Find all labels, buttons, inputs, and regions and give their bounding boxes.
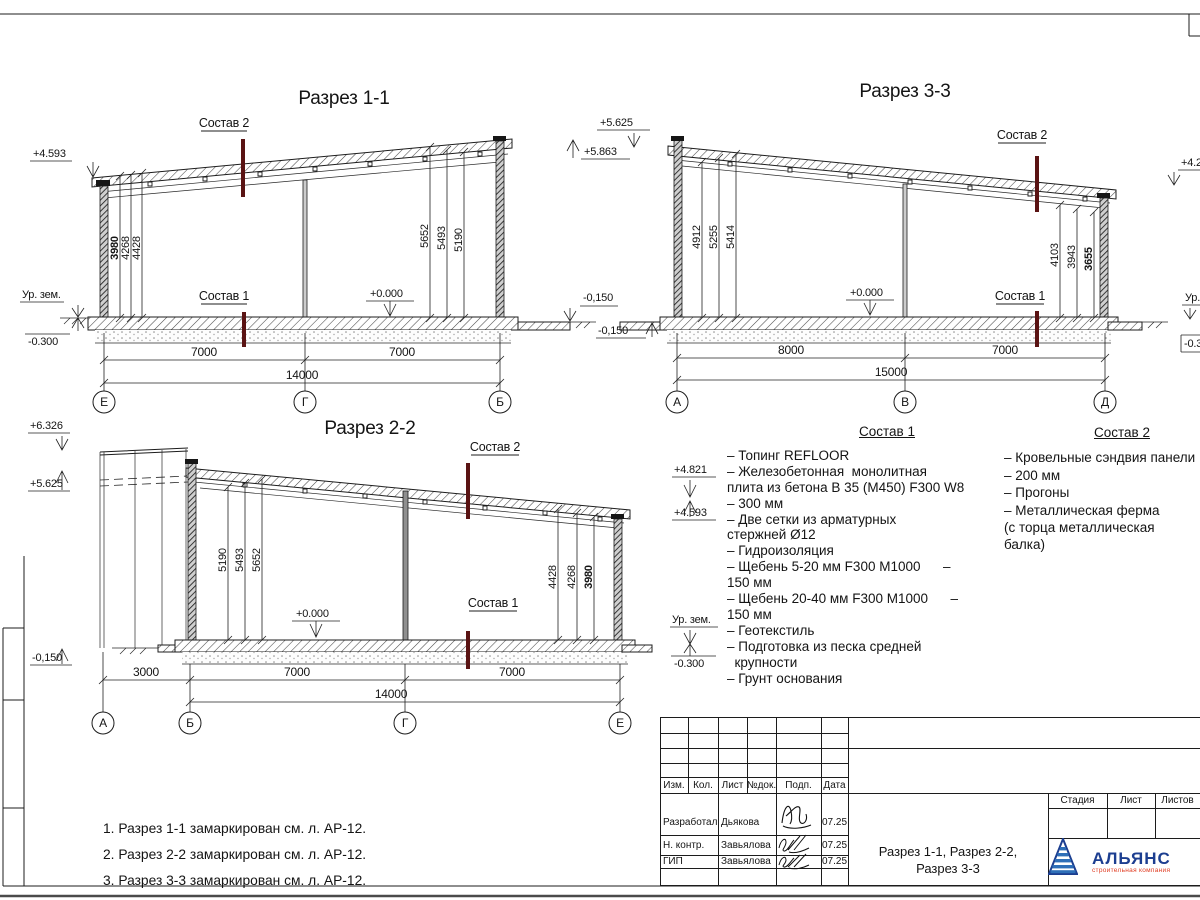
sostav2-label: Состав 2 — [470, 440, 520, 454]
apron-right — [518, 322, 570, 330]
section-title: Разрез 2-2 — [324, 418, 415, 439]
notes-block: 1. Разрез 1-1 замаркирован см. л. АР-12.… — [103, 816, 366, 894]
span-dim: 7000 — [992, 343, 1018, 357]
tb-doc-title: Разрез 1-1, Разрез 2-2, Разрез 3-3 — [848, 839, 1048, 881]
left-margin-boxes — [3, 556, 24, 886]
subbase — [667, 330, 1111, 343]
dim: 5493 — [436, 226, 448, 250]
drawing-sheet: Разрез 1-1 Состав 2 Состав 1 3980 4268 4… — [0, 0, 1200, 900]
axis-letter: Б — [186, 716, 194, 730]
sostav2-label: Состав 2 — [199, 116, 249, 130]
legend-item: – Гидроизоляция — [727, 543, 1003, 559]
wall-right — [1100, 198, 1108, 318]
tb-doc-title-line2: Разрез 3-3 — [916, 860, 980, 877]
elevation: -0.300 — [28, 336, 58, 348]
span-dim: 8000 — [778, 343, 804, 357]
dim: 3655 — [1083, 247, 1095, 271]
apron-left — [158, 645, 175, 652]
sostav1-label: Состав 1 — [995, 289, 1045, 303]
axis-letter: Г — [302, 395, 309, 409]
apron-right — [1108, 322, 1142, 330]
sostav2-legend: Состав 2 – Кровельные сэндвия панели – 2… — [1004, 424, 1200, 554]
elevation: -0.300 — [674, 658, 704, 670]
legend-item: – Металлическая ферма (с торца металличе… — [1004, 502, 1200, 554]
corner-stamp-box — [1189, 14, 1200, 36]
span-dim: 7000 — [389, 345, 415, 359]
sostav1-marker — [242, 312, 246, 347]
legend-item: – Топинг REFLOOR — [727, 448, 1003, 464]
tb-col-ndok: №док. — [747, 777, 776, 793]
tb-role: Разработал — [660, 809, 721, 835]
total-dim: 14000 — [375, 687, 408, 701]
dim: 4268 — [566, 565, 578, 589]
tb-listov: Листов — [1155, 793, 1200, 808]
wall-right — [496, 141, 504, 318]
tb-col-izm: Изм. — [660, 777, 688, 793]
sostav2-marker — [241, 139, 245, 197]
tb-col-podp: Подп. — [776, 777, 821, 793]
sostav2-marker — [1035, 156, 1039, 212]
signature-icon — [776, 797, 821, 835]
dim: 5493 — [234, 548, 246, 572]
total-dim: 14000 — [286, 368, 319, 382]
title-block: Изм. Кол. Лист №док. Подп. Дата Разработ… — [660, 717, 1200, 886]
elevation: +5.625 — [600, 117, 633, 129]
tb-name: Завьялова — [718, 855, 779, 868]
section-title: Разрез 3-3 — [859, 81, 950, 102]
ground-level-label: Ур. зем. — [22, 289, 61, 301]
sostav2-marker — [466, 463, 470, 519]
zero-mark: +0.000 — [296, 608, 329, 620]
note-line: 1. Разрез 1-1 замаркирован см. л. АР-12. — [103, 816, 366, 842]
dim: 4912 — [691, 225, 703, 249]
column — [303, 180, 307, 318]
tb-stadia: Стадия — [1048, 793, 1107, 808]
company-logo: АЛЬЯНС строительная компания — [1048, 838, 1200, 885]
elevation: +4.821 — [674, 464, 707, 476]
dim: 5652 — [251, 548, 263, 572]
ground-level-label: Ур. — [1185, 292, 1200, 304]
signature-icon — [776, 853, 821, 871]
dim: 5414 — [725, 225, 737, 249]
span-dim: 7000 — [499, 665, 525, 679]
column — [903, 184, 907, 318]
axis-letter: Е — [100, 395, 108, 409]
floor-slab — [660, 317, 1118, 330]
dim: 4428 — [547, 565, 559, 589]
axis-letter: В — [901, 395, 909, 409]
wall-left — [674, 140, 682, 318]
dim: 3943 — [1066, 245, 1078, 269]
tb-role: ГИП — [660, 855, 721, 868]
floor-slab — [88, 317, 518, 330]
sostav2-legend-title: Состав 2 — [1062, 424, 1182, 441]
legend-item: – Две сетки из арматурных стержней Ø12 — [727, 512, 1003, 544]
zero-mark: +0.000 — [850, 287, 883, 299]
legend-item: – Кровельные сэндвия панели — [1004, 449, 1200, 466]
note-line: 3. Разрез 3-3 замаркирован см. л. АР-12. — [103, 868, 366, 894]
logo-subtitle: строительная компания — [1092, 867, 1171, 874]
tb-name: Дьякова — [718, 809, 779, 835]
axis-letter: Д — [1101, 395, 1109, 409]
legend-item: – Щебень 5-20 мм F300 М1000 – 150 мм — [727, 559, 1003, 591]
legend-item: – Щебень 20-40 мм F300 М1000 – 150 мм — [727, 591, 1003, 623]
section-3-3: Разрез 3-3 Состав 2 Состав 1 4912 5255 5… — [596, 81, 1200, 413]
legend-item: – Геотекстиль — [727, 623, 1003, 639]
tb-doc-title-line1: Разрез 1-1, Разрез 2-2, — [879, 843, 1017, 860]
elevation: +4.593 — [674, 507, 707, 519]
elevation: +6.326 — [30, 420, 63, 432]
elevation: -0,150 — [598, 325, 628, 337]
span-dim: 7000 — [191, 345, 217, 359]
axis-letter: Е — [616, 716, 624, 730]
dim: 4428 — [131, 236, 143, 260]
total-dim: 15000 — [875, 365, 908, 379]
elevation: +4.593 — [33, 148, 66, 160]
wall-left — [100, 186, 108, 318]
legend-item: – Прогоны — [1004, 484, 1200, 501]
dim: 4103 — [1049, 243, 1061, 267]
tb-list: Лист — [1107, 793, 1155, 808]
dim: 5190 — [453, 228, 465, 252]
tb-col-list: Лист — [718, 777, 747, 793]
tb-col-kol: Кол. — [688, 777, 718, 793]
tb-date: 07.25 — [821, 809, 848, 835]
legend-item: – 200 мм — [1004, 467, 1200, 484]
legend-item: – Грунт основания — [727, 671, 1003, 687]
elevation: +4.2 — [1181, 157, 1200, 169]
tb-date: 07.25 — [821, 855, 848, 868]
legend-item: – Подготовка из песка средней крупности — [727, 639, 1003, 671]
sostav2-label: Состав 2 — [997, 128, 1047, 142]
sostav1-label: Состав 1 — [199, 289, 249, 303]
section-2-2: Разрез 2-2 Состав 2 Состав 1 5190 5493 5 — [28, 418, 718, 734]
dim: 5652 — [419, 224, 431, 248]
column — [403, 491, 408, 640]
section-1-1: Разрез 1-1 Состав 2 Состав 1 3980 4268 4… — [20, 88, 650, 413]
section-title: Разрез 1-1 — [298, 88, 389, 109]
span-dim: 3000 — [133, 665, 159, 679]
tb-role: Н. контр. — [660, 835, 721, 855]
elevation: -0,150 — [583, 292, 613, 304]
subbase — [182, 652, 628, 664]
wall-left — [188, 463, 196, 640]
ground-level-label: Ур. зем. — [672, 614, 711, 626]
dim: 3980 — [583, 565, 595, 589]
tb-date: 07.25 — [821, 835, 848, 855]
span-dim: 7000 — [284, 665, 310, 679]
wall-right — [614, 519, 622, 640]
floor-slab — [175, 640, 635, 652]
roof-slab — [668, 146, 1116, 199]
dim: 5190 — [217, 548, 229, 572]
axis-letter: Г — [402, 716, 409, 730]
fence — [100, 448, 188, 648]
dim: 5255 — [708, 225, 720, 249]
sostav1-label: Состав 1 — [468, 596, 518, 610]
note-line: 2. Разрез 2-2 замаркирован см. л. АР-12. — [103, 842, 366, 868]
sostav1-legend: Состав 1 – Топинг REFLOOR – Железобетонн… — [727, 424, 1003, 687]
logo-pyramid-icon — [1048, 838, 1078, 876]
axis-letter: Б — [496, 395, 504, 409]
sostav1-marker — [466, 631, 470, 669]
subbase — [95, 330, 511, 343]
sostav1-marker — [1035, 311, 1039, 347]
elevation: -0.3 — [1184, 338, 1200, 350]
apron-right — [622, 645, 652, 652]
elevation: +5.863 — [584, 146, 617, 158]
axis-letter: А — [673, 395, 681, 409]
tb-col-data: Дата — [821, 777, 848, 793]
legend-item: – Железобетонная монолитная плита из бет… — [727, 464, 1003, 512]
sostav1-legend-title: Состав 1 — [787, 424, 987, 440]
signature-icon — [776, 834, 821, 855]
tb-name: Завьялова — [718, 835, 779, 855]
axis-letter: А — [99, 716, 107, 730]
zero-mark: +0.000 — [370, 288, 403, 300]
logo-name: АЛЬЯНС — [1092, 850, 1171, 867]
